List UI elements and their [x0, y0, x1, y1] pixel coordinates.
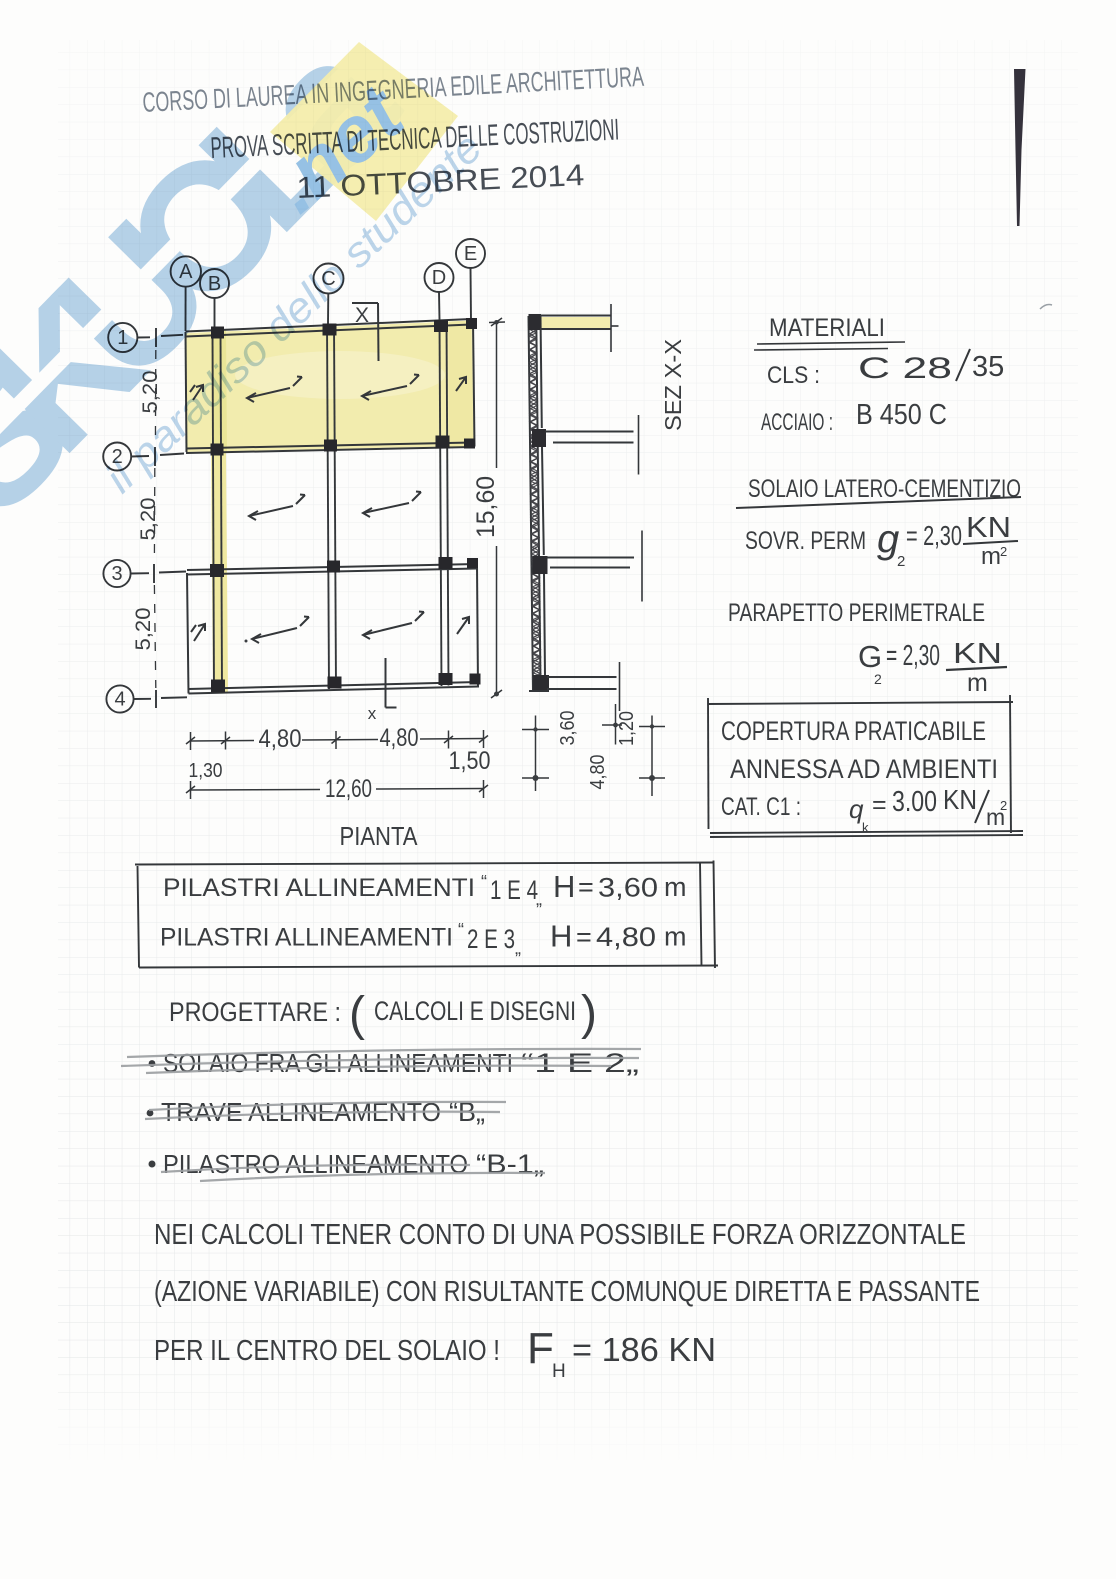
svg-text:15,60: 15,60 [472, 476, 500, 538]
svg-text:KN: KN [953, 638, 1002, 670]
svg-text:4,80: 4,80 [596, 922, 656, 952]
svg-text:“B-1„: “B-1„ [476, 1149, 544, 1179]
svg-text:): ) [581, 987, 597, 1040]
svg-text:k: k [862, 820, 869, 835]
svg-text:=: = [872, 791, 887, 819]
svg-text:CALCOLI E DISEGNI: CALCOLI E DISEGNI [374, 996, 576, 1026]
svg-text:3.00: 3.00 [892, 786, 937, 818]
svg-text:F: F [527, 1324, 554, 1373]
svg-text:2: 2 [1000, 544, 1007, 559]
svg-text:1,30: 1,30 [189, 760, 223, 782]
svg-text:PER IL CENTRO DEL SOLAIO !: PER IL CENTRO DEL SOLAIO ! [154, 1335, 500, 1367]
svg-text:G: G [858, 639, 882, 674]
svg-text:= 2,30: = 2,30 [886, 640, 940, 672]
svg-text:35: 35 [972, 351, 1004, 383]
svg-text:CAT. C1 :: CAT. C1 : [721, 793, 801, 821]
svg-text:“: “ [481, 872, 487, 892]
svg-text:PILASTRI ALLINEAMENTI: PILASTRI ALLINEAMENTI [163, 874, 475, 902]
svg-text:m: m [664, 922, 687, 952]
svg-text:PARAPETTO PERIMETRALE: PARAPETTO PERIMETRALE [728, 599, 985, 627]
svg-text:4,80: 4,80 [380, 724, 419, 752]
svg-text:H: H [553, 869, 575, 904]
svg-text:COPERTURA PRATICABILE: COPERTURA PRATICABILE [721, 716, 986, 746]
svg-text:1,50: 1,50 [449, 747, 491, 775]
svg-text:1,20: 1,20 [616, 711, 638, 746]
svg-text:SOVR. PERM: SOVR. PERM [745, 527, 866, 555]
svg-text:m: m [664, 872, 687, 902]
svg-text:PILASTRI ALLINEAMENTI: PILASTRI ALLINEAMENTI [160, 924, 453, 952]
svg-text:3,60: 3,60 [598, 873, 658, 903]
svg-text:H: H [552, 1361, 566, 1382]
svg-text:2: 2 [874, 671, 882, 687]
svg-text:5,20: 5,20 [137, 498, 160, 541]
svg-text:= 2,30: = 2,30 [906, 520, 962, 551]
svg-text:PROGETTARE :: PROGETTARE : [169, 997, 341, 1027]
svg-text:E: E [464, 243, 477, 265]
svg-text:SEZ X-X: SEZ X-X [660, 339, 686, 431]
svg-text:“1 E 2„: “1 E 2„ [521, 1048, 639, 1078]
svg-text:3,60: 3,60 [557, 711, 579, 746]
svg-text:ACCIAIO :: ACCIAIO : [761, 409, 833, 436]
svg-text:(: ( [349, 988, 365, 1041]
svg-text:KN: KN [943, 784, 977, 815]
svg-text:1 E 4: 1 E 4 [490, 875, 538, 905]
svg-text:=: = [576, 922, 592, 952]
svg-text:D: D [432, 267, 446, 289]
svg-text:2: 2 [1000, 798, 1007, 813]
svg-text:g: g [877, 517, 899, 561]
svg-text:m: m [981, 543, 1001, 570]
svg-text:ANNESSA AD AMBIENTI: ANNESSA AD AMBIENTI [730, 754, 998, 784]
svg-text:PIANTA: PIANTA [340, 821, 419, 851]
svg-text:2 E 3: 2 E 3 [467, 924, 515, 954]
svg-text:4,80: 4,80 [587, 755, 609, 790]
svg-text:=: = [578, 872, 594, 902]
svg-text:„: „ [515, 938, 521, 958]
svg-text:m: m [967, 669, 988, 697]
svg-text:NEI CALCOLI TENER CONTO DI UNA: NEI CALCOLI TENER CONTO DI UNA POSSIBILE… [154, 1219, 966, 1251]
svg-text:CLS :: CLS : [767, 362, 820, 389]
svg-text:12,60: 12,60 [325, 775, 372, 803]
svg-text:5,20: 5,20 [132, 608, 155, 651]
svg-text:4,80: 4,80 [259, 725, 302, 753]
svg-text:2: 2 [897, 553, 905, 570]
svg-text:“: “ [458, 920, 464, 940]
svg-text:3: 3 [111, 563, 122, 585]
svg-text:B 450 C: B 450 C [856, 399, 947, 431]
svg-text:„: „ [536, 889, 542, 909]
svg-text:MATERIALI: MATERIALI [769, 314, 885, 342]
svg-text:X: X [355, 304, 369, 327]
svg-text:H: H [550, 919, 572, 954]
svg-text:x: x [368, 704, 377, 723]
svg-text:C 28: C 28 [858, 352, 952, 385]
svg-text:4: 4 [114, 689, 125, 711]
svg-text:= 186 KN: = 186 KN [572, 1331, 716, 1368]
svg-text:KN: KN [966, 512, 1011, 544]
svg-text:(AZIONE VARIABILE) CON RISULTA: (AZIONE VARIABILE) CON RISULTANTE COMUNQ… [154, 1276, 980, 1308]
